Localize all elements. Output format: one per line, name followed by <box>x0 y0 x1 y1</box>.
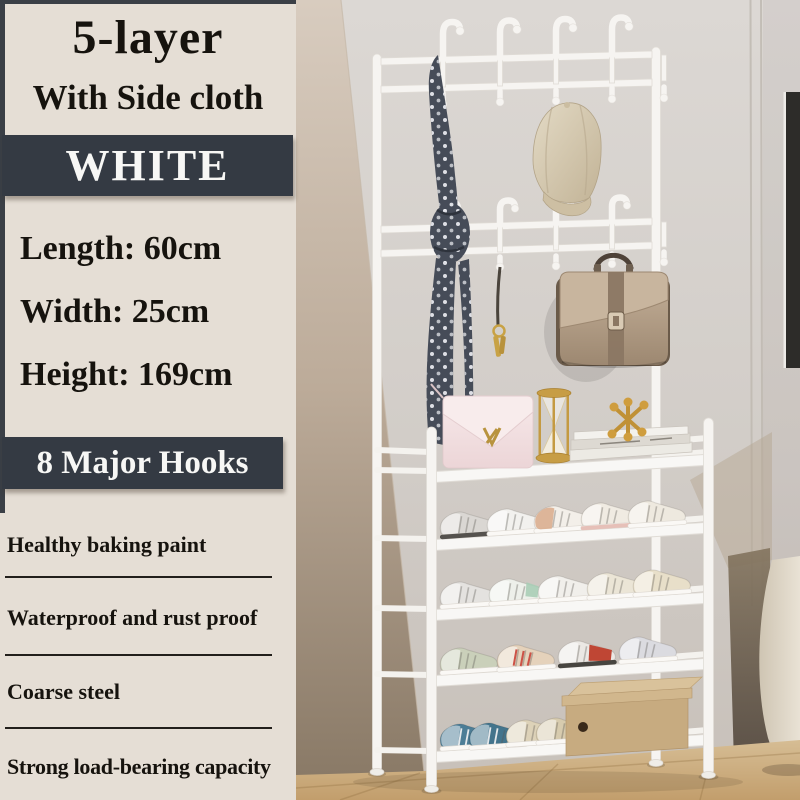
pink-purse <box>431 384 533 468</box>
product-subtitle: With Side cloth <box>0 78 296 118</box>
info-panel: 5-layer With Side cloth WHITE Length: 60… <box>0 0 296 800</box>
hooks-badge: 8 Major Hooks <box>2 437 283 489</box>
separator-line <box>5 727 272 729</box>
frame-edge <box>784 92 787 368</box>
cardboard-shoe-box <box>562 677 702 756</box>
color-badge: WHITE <box>2 135 293 196</box>
product-photo <box>296 0 800 800</box>
rack-floor-shadow <box>353 771 743 793</box>
box-hole <box>578 722 588 732</box>
beige-cap <box>533 102 601 216</box>
dimension-width: Width: 25cm <box>20 293 209 331</box>
front-right-post <box>704 418 714 775</box>
wall-frame <box>786 92 800 368</box>
feature-load: Strong load-bearing capacity <box>7 754 271 780</box>
taupe-handbag <box>544 255 670 382</box>
feature-paint: Healthy baking paint <box>7 532 206 558</box>
separator-line <box>5 654 272 656</box>
panel-top-border <box>0 0 296 4</box>
front-left-post <box>427 427 437 789</box>
feature-steel: Coarse steel <box>7 679 120 705</box>
cap-button <box>564 102 570 108</box>
dimension-length: Length: 60cm <box>20 230 221 268</box>
dimension-height: Height: 169cm <box>20 356 232 394</box>
feature-waterproof: Waterproof and rust proof <box>7 605 257 631</box>
product-card: 5-layer With Side cloth WHITE Length: 60… <box>0 0 800 800</box>
rack-left-rail <box>373 54 382 772</box>
product-title: 5-layer <box>0 10 296 65</box>
separator-line <box>5 576 272 578</box>
